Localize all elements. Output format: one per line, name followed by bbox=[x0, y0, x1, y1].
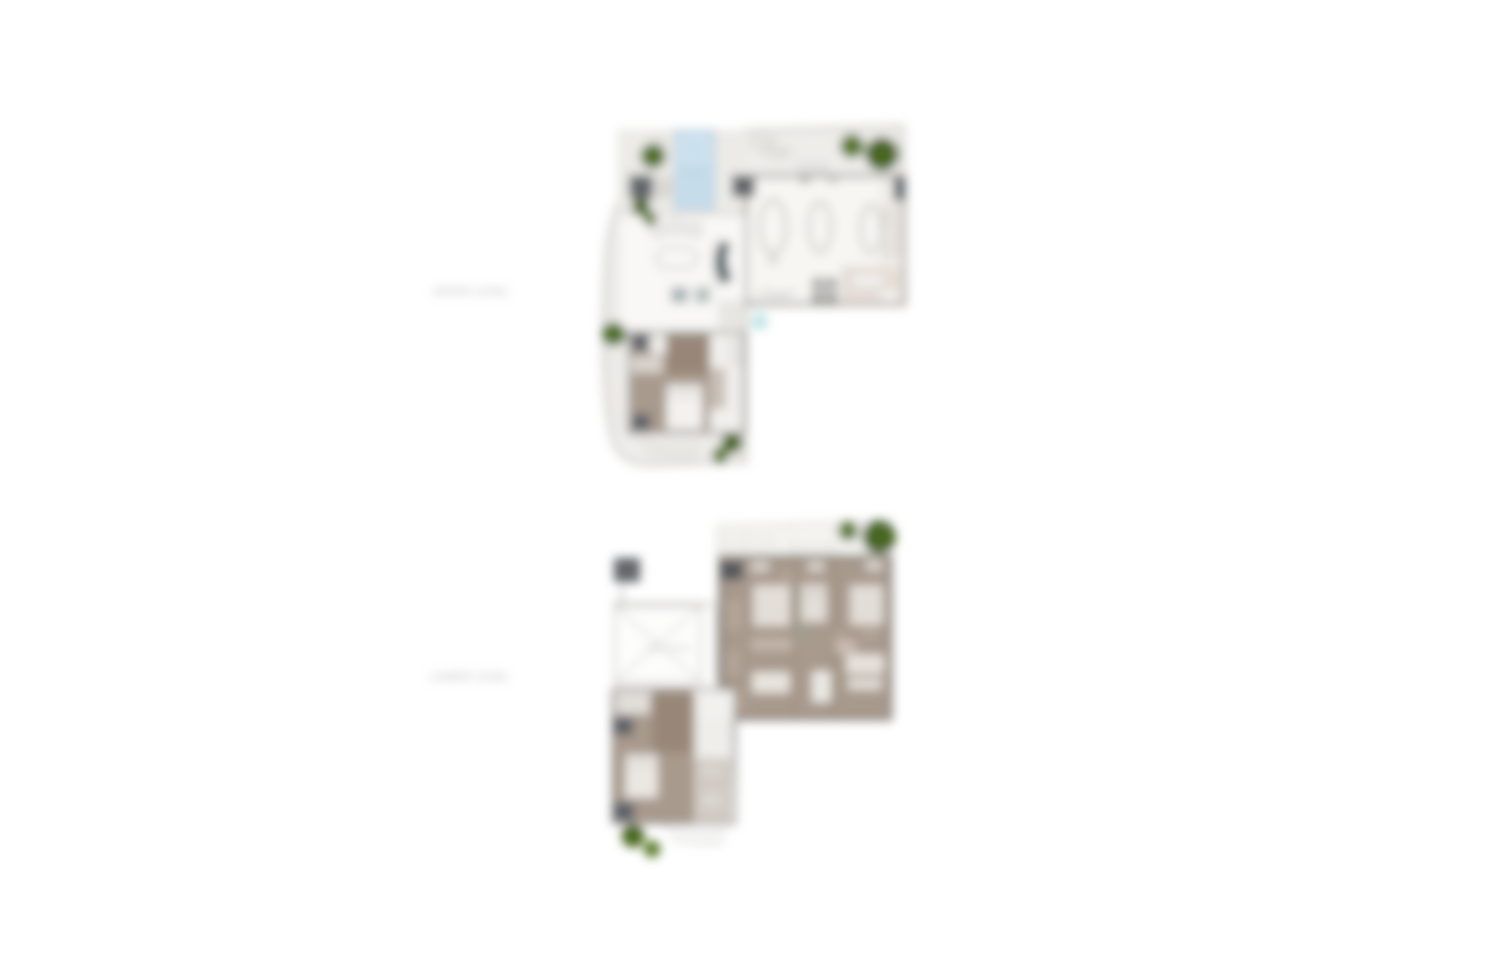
svg-text:LOWER LEVEL: LOWER LEVEL bbox=[430, 671, 510, 683]
svg-text:VOID SPACE: VOID SPACE bbox=[645, 644, 690, 653]
svg-text:UPPER LEVEL: UPPER LEVEL bbox=[432, 286, 509, 298]
